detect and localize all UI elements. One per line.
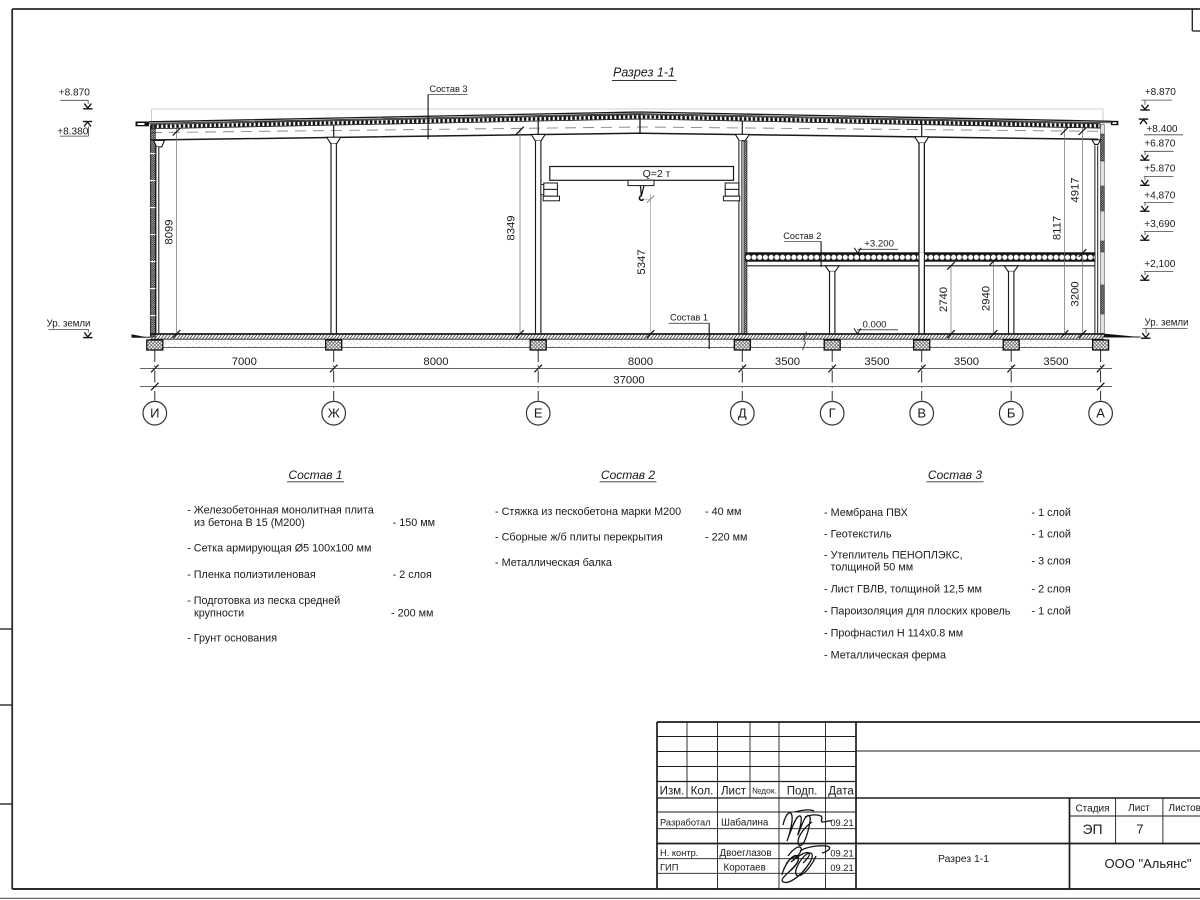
svg-text:Разработал: Разработал	[660, 817, 711, 827]
svg-text:Г: Г	[829, 406, 836, 421]
svg-text:Состав 1: Состав 1	[670, 312, 708, 322]
svg-text:- 3 слоя: - 3 слоя	[1032, 556, 1071, 568]
svg-text:Подп.: Подп.	[787, 785, 818, 797]
svg-text:из бетона В 15 (М200): из бетона В 15 (М200)	[194, 517, 305, 529]
svg-text:Коротаев: Коротаев	[724, 862, 766, 873]
svg-text:3500: 3500	[1043, 356, 1068, 368]
svg-text:- Пароизоляция для плоских кро: - Пароизоляция для плоских кровель	[824, 606, 1011, 618]
svg-text:- 40 мм: - 40 мм	[705, 506, 741, 518]
svg-text:3500: 3500	[775, 356, 800, 368]
svg-text:2740: 2740	[938, 287, 950, 312]
svg-text:4917: 4917	[1070, 177, 1082, 202]
svg-text:ООО "Альянс": ООО "Альянс"	[1105, 856, 1192, 871]
svg-text:Ур. земли: Ур. земли	[47, 319, 91, 330]
svg-text:+2,100: +2,100	[1144, 259, 1176, 270]
svg-text:09.21: 09.21	[830, 818, 853, 828]
svg-text:ГИП: ГИП	[660, 862, 678, 872]
svg-text:А: А	[1096, 406, 1105, 421]
svg-text:толщиной 50 мм: толщиной 50 мм	[831, 562, 914, 574]
svg-text:- 1 слой: - 1 слой	[1032, 507, 1071, 519]
svg-text:- Сборные ж/б плиты перекрытия: - Сборные ж/б плиты перекрытия	[495, 532, 663, 544]
svg-text:- Металлическая балка: - Металлическая балка	[495, 557, 612, 569]
svg-text:8099: 8099	[164, 219, 176, 244]
svg-text:- 2 слоя: - 2 слоя	[393, 569, 432, 581]
svg-text:- Грунт основания: - Грунт основания	[187, 633, 277, 645]
svg-text:37000: 37000	[613, 374, 644, 386]
svg-text:Дата: Дата	[828, 785, 854, 797]
svg-text:- Лист ГВЛВ, толщиной 12,5 мм: - Лист ГВЛВ, толщиной 12,5 мм	[824, 584, 982, 596]
svg-text:Состав 1: Состав 1	[288, 468, 342, 482]
svg-text:Двоеглазов: Двоеглазов	[720, 848, 772, 859]
svg-text:- Профнастил Н 114х0.8 мм: - Профнастил Н 114х0.8 мм	[824, 628, 963, 640]
svg-text:+8.380: +8.380	[57, 126, 89, 137]
svg-text:+3.200: +3.200	[864, 239, 894, 250]
svg-text:В: В	[917, 406, 926, 421]
svg-text:- 1 слой: - 1 слой	[1032, 529, 1071, 541]
svg-text:+8.870: +8.870	[59, 88, 91, 99]
svg-text:8000: 8000	[628, 356, 653, 368]
svg-text:Е: Е	[534, 406, 543, 421]
svg-text:+5.870: +5.870	[1144, 164, 1176, 175]
svg-text:7: 7	[1136, 822, 1143, 837]
svg-text:- Пленка полиэтиленовая: - Пленка полиэтиленовая	[187, 569, 316, 581]
svg-text:+6.870: +6.870	[1144, 138, 1176, 149]
svg-text:- Подготовка из песка средней: - Подготовка из песка средней	[187, 595, 340, 607]
svg-text:Q=2 т: Q=2 т	[643, 168, 671, 180]
svg-text:+3,690: +3,690	[1144, 219, 1176, 230]
svg-text:- 220 мм: - 220 мм	[705, 532, 747, 544]
svg-text:3500: 3500	[954, 356, 979, 368]
svg-text:Листов: Листов	[1169, 803, 1200, 814]
svg-text:Лист: Лист	[1128, 803, 1150, 814]
svg-text:- Металлическая ферма: - Металлическая ферма	[824, 650, 946, 662]
svg-text:- Стяжка из пескобетона марки: - Стяжка из пескобетона марки М200	[495, 506, 681, 518]
svg-text:09.21: 09.21	[830, 863, 853, 873]
svg-text:+8.870: +8.870	[1145, 87, 1177, 98]
svg-text:Состав 3: Состав 3	[429, 84, 467, 94]
svg-text:8000: 8000	[423, 356, 448, 368]
svg-text:- 200 мм: - 200 мм	[391, 607, 433, 619]
svg-text:2940: 2940	[981, 286, 993, 311]
svg-text:- 2 слоя: - 2 слоя	[1032, 584, 1071, 596]
svg-text:Состав 3: Состав 3	[928, 468, 982, 482]
svg-text:3500: 3500	[864, 356, 889, 368]
svg-text:И: И	[150, 406, 159, 421]
svg-text:Разрез 1-1: Разрез 1-1	[613, 66, 675, 80]
svg-text:8117: 8117	[1052, 216, 1064, 240]
svg-text:- Железобетонная монолитная п: - Железобетонная монолитная плита	[187, 504, 374, 516]
svg-text:Шабалина: Шабалина	[721, 817, 769, 828]
svg-text:Кол.: Кол.	[691, 785, 714, 797]
svg-text:09.21: 09.21	[830, 849, 853, 859]
svg-text:Н. контр.: Н. контр.	[660, 848, 698, 858]
svg-text:- Геотекстиль: - Геотекстиль	[824, 529, 892, 541]
svg-text:7000: 7000	[232, 356, 257, 368]
svg-text:8349: 8349	[505, 215, 517, 240]
svg-text:5347: 5347	[636, 249, 648, 274]
svg-text:Изм.: Изм.	[660, 785, 685, 797]
svg-text:3200: 3200	[1070, 281, 1082, 306]
svg-text:- 1 слой: - 1 слой	[1032, 606, 1071, 618]
svg-text:№док.: №док.	[752, 785, 777, 795]
svg-text:Ж: Ж	[328, 406, 340, 421]
svg-text:Стадия: Стадия	[1075, 804, 1109, 815]
svg-text:Состав 2: Состав 2	[783, 231, 821, 241]
svg-text:Состав 2: Состав 2	[601, 468, 655, 482]
svg-text:крупности: крупности	[194, 607, 244, 619]
svg-text:Разрез 1-1: Разрез 1-1	[938, 854, 989, 865]
svg-text:+8.400: +8.400	[1146, 124, 1178, 135]
svg-text:Д: Д	[738, 406, 747, 421]
svg-text:ЭП: ЭП	[1082, 821, 1102, 837]
svg-text:Ур. земли: Ур. земли	[1145, 317, 1189, 328]
svg-text:+4,870: +4,870	[1144, 190, 1176, 201]
svg-text:Лист: Лист	[721, 785, 747, 797]
svg-text:- Мембрана ПВХ: - Мембрана ПВХ	[824, 507, 908, 519]
svg-text:0.000: 0.000	[863, 319, 887, 330]
svg-text:- Утеплитель ПЕНОПЛЭКС,: - Утеплитель ПЕНОПЛЭКС,	[824, 550, 963, 562]
svg-text:Б: Б	[1007, 406, 1016, 421]
svg-text:- 150 мм: - 150 мм	[393, 517, 435, 529]
svg-text:- Сетка армирующая Ø5 100х100: - Сетка армирующая Ø5 100х100 мм	[187, 543, 371, 555]
